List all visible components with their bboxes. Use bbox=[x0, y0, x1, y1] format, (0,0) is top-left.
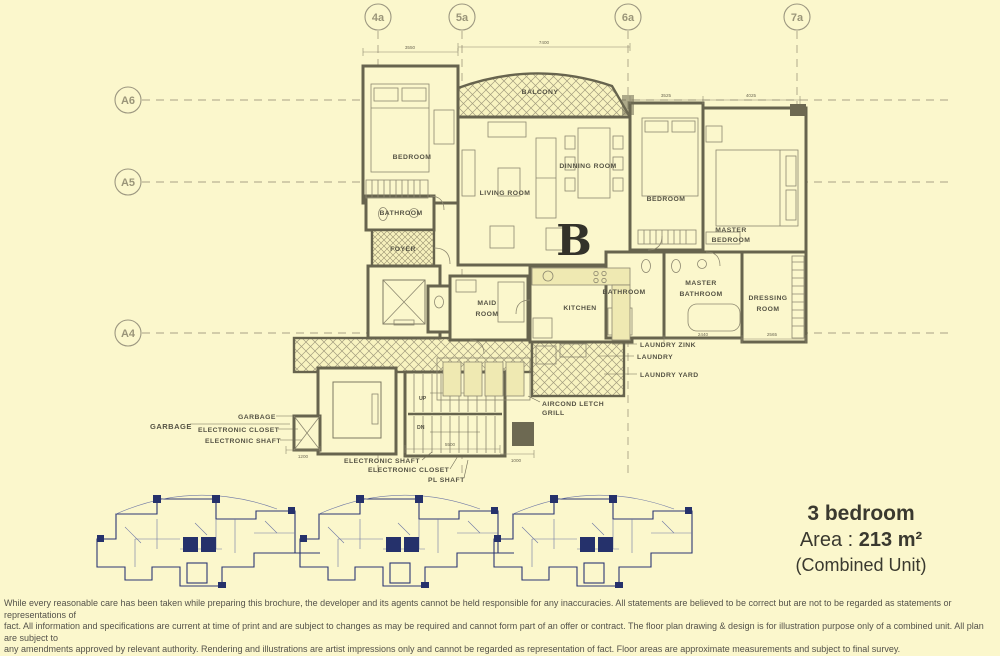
label-bathroom1: BATHROOM bbox=[379, 210, 422, 217]
key-plan bbox=[97, 495, 692, 588]
label-kitchen: KITCHEN bbox=[563, 305, 596, 312]
label-dressing-2: ROOM bbox=[757, 306, 780, 313]
disclaimer-line-1: While every reasonable care has been tak… bbox=[4, 598, 997, 621]
label-bathroom2: BATHROOM bbox=[602, 289, 645, 296]
label-balcony: BALCONY bbox=[522, 89, 559, 96]
label-electronic-shaft-top: ELECTRONIC SHAFT bbox=[205, 438, 281, 445]
dim-3550: 3550 bbox=[405, 45, 416, 50]
unit-combined: (Combined Unit) bbox=[756, 553, 966, 578]
dim-1200: 1200 bbox=[298, 454, 309, 459]
label-maid-2: ROOM bbox=[476, 311, 499, 318]
disclaimer: While every reasonable care has been tak… bbox=[4, 598, 997, 656]
label-maid-1: MAID bbox=[477, 300, 496, 307]
unit-area-value: 213 m² bbox=[859, 529, 922, 551]
grid-label-7a: 7a bbox=[791, 12, 804, 24]
label-bedroom2: BEDROOM bbox=[647, 196, 686, 203]
label-dn: DN bbox=[417, 425, 425, 431]
label-master-bedroom-1: MASTER bbox=[715, 227, 746, 234]
dim-5500: 5500 bbox=[445, 442, 456, 447]
grid-label-a6: A6 bbox=[121, 95, 135, 107]
grid-label-a4: A4 bbox=[121, 328, 136, 340]
room-maid-wc bbox=[428, 286, 450, 332]
label-foyer: FOYER bbox=[390, 246, 416, 253]
label-pl-shaft: PL SHAFT bbox=[428, 477, 465, 484]
label-electronic-shaft-bottom: ELECTRONIC SHAFT bbox=[344, 458, 420, 465]
dim-4025: 4025 bbox=[746, 93, 757, 98]
label-up: UP bbox=[419, 396, 427, 402]
room-bedroom1 bbox=[363, 66, 458, 203]
dim-1000: 1000 bbox=[511, 458, 522, 463]
label-garbage: GARBAGE bbox=[238, 414, 276, 421]
room-maid bbox=[450, 276, 528, 340]
grid-label-6a: 6a bbox=[622, 12, 635, 24]
dim-3525: 3525 bbox=[661, 93, 672, 98]
label-unit-letter: B bbox=[556, 216, 592, 265]
service-block bbox=[512, 422, 534, 446]
label-master-bathroom-2: BATHROOM bbox=[679, 291, 722, 298]
elevator-shaft-2 bbox=[318, 368, 396, 454]
label-aircond-2: GRILL bbox=[542, 410, 565, 417]
laundry-yard-area bbox=[532, 342, 624, 396]
grid-label-a5: A5 bbox=[121, 177, 135, 189]
disclaimer-line-3: any amendments approved by relevant auth… bbox=[4, 644, 997, 656]
label-electronic-closet-top: ELECTRONIC CLOSET bbox=[198, 427, 280, 434]
room-bedroom2 bbox=[630, 103, 703, 250]
unit-info: 3 bedroom Area : 213 m² (Combined Unit) bbox=[756, 501, 966, 578]
unit-area: Area : 213 m² bbox=[756, 527, 966, 553]
dim-2565: 2565 bbox=[767, 332, 778, 337]
label-master-bathroom-1: MASTER bbox=[685, 280, 716, 287]
floor-plan bbox=[190, 43, 806, 478]
label-dinning-room: DINNING ROOM bbox=[559, 163, 616, 170]
label-master-bedroom-2: BEDROOM bbox=[712, 237, 751, 244]
label-laundry: LAUNDRY bbox=[637, 354, 673, 361]
grid-label-5a: 5a bbox=[456, 12, 469, 24]
label-electronic-closet-bottom: ELECTRONIC CLOSET bbox=[368, 467, 450, 474]
disclaimer-line-2: fact. All information and specifications… bbox=[4, 621, 997, 644]
label-living-room: LIVING ROOM bbox=[480, 190, 531, 197]
label-laundry-yard: LAUNDRY YARD bbox=[640, 372, 699, 379]
label-bedroom1: BEDROOM bbox=[393, 154, 432, 161]
brochure-page: 4a 5a 6a 7a A6 A5 A4 BEDROOM BALCONY LIV… bbox=[0, 0, 1000, 640]
grid-label-4a: 4a bbox=[372, 12, 385, 24]
unit-type: 3 bedroom bbox=[756, 501, 966, 527]
label-garbage-left: GARBAGE bbox=[150, 422, 192, 431]
unit-area-label: Area : bbox=[800, 529, 853, 551]
label-aircond-1: AIRCOND LETCH bbox=[542, 401, 604, 408]
label-dressing-1: DRESSING bbox=[748, 295, 787, 302]
dim-2440: 2440 bbox=[698, 332, 709, 337]
dim-7400: 7400 bbox=[539, 40, 550, 45]
label-laundry-zink: LAUNDRY ZINK bbox=[640, 342, 696, 349]
